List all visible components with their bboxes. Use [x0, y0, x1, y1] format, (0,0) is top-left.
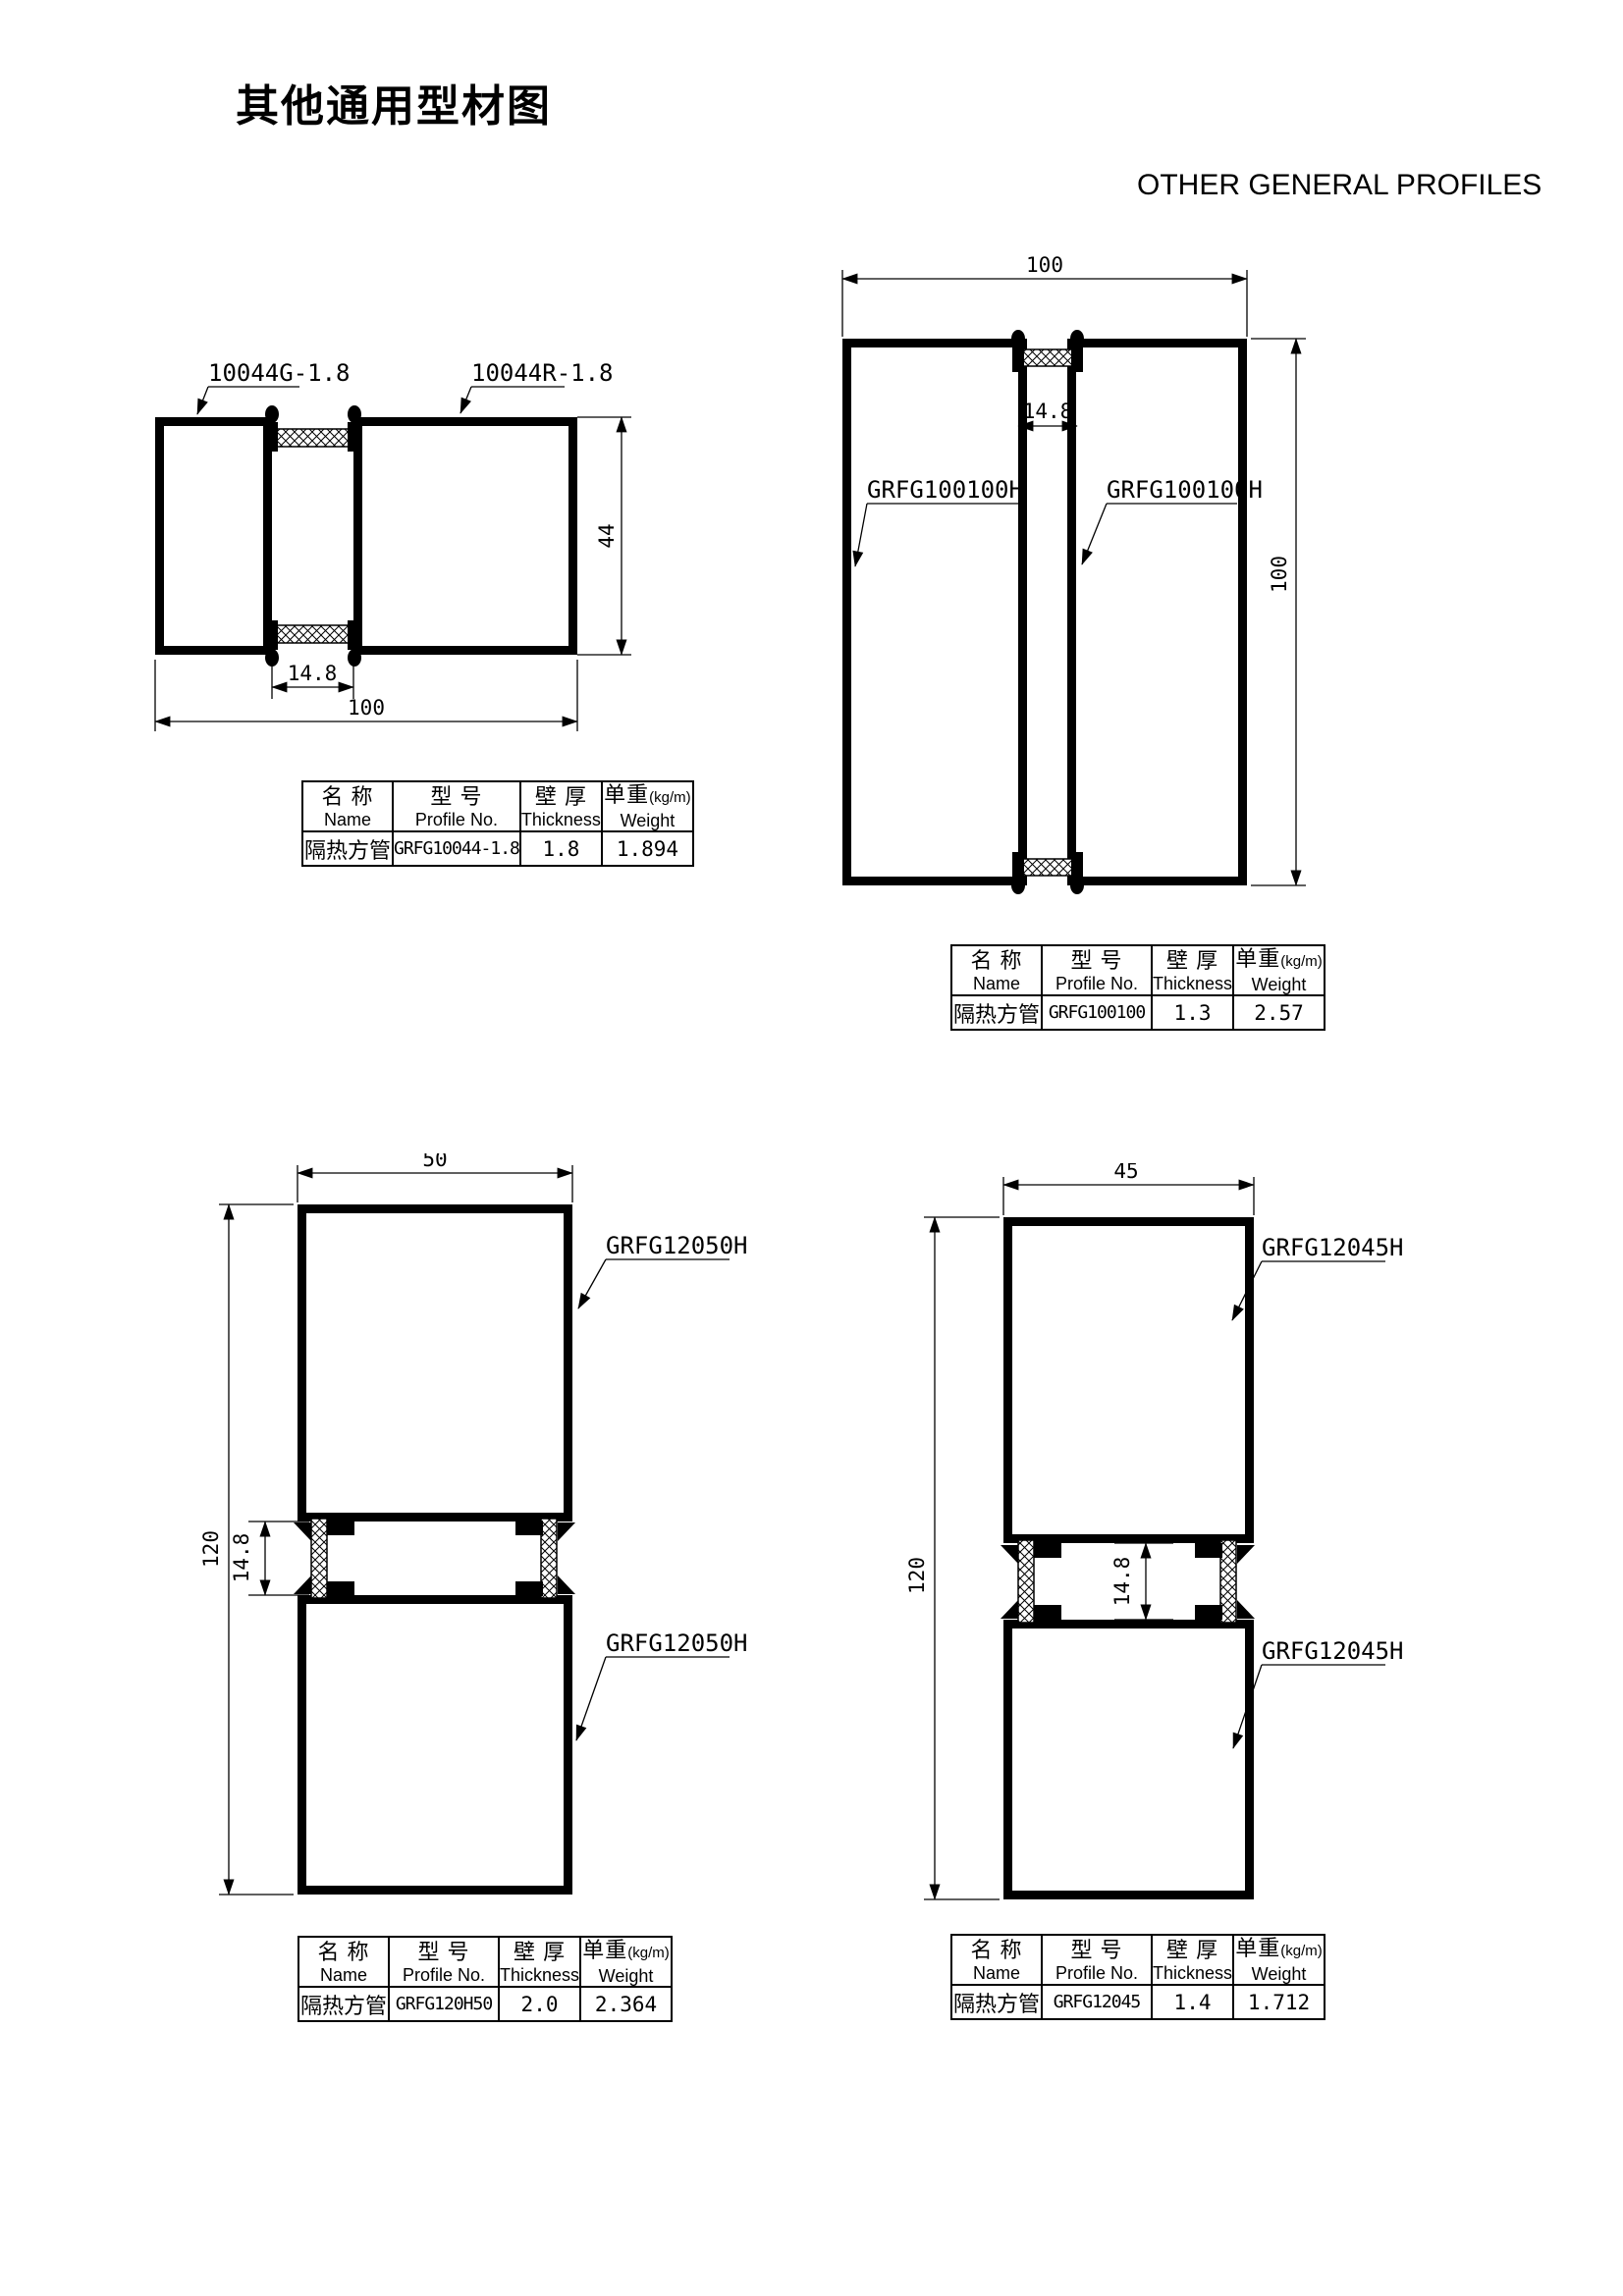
callout-top-label: GRFG12045H — [1262, 1234, 1404, 1261]
cell-profile-no: GRFG120H50 — [389, 1987, 499, 2021]
header-thickness-en: Thickness — [1153, 974, 1232, 993]
header-weight: 单重(kg/m)Weight — [580, 1937, 672, 1987]
thermal-break-straps — [294, 1519, 575, 1598]
table-data-row: 隔热方管 GRFG100100 1.3 2.57 — [951, 995, 1325, 1030]
header-name-cn: 名 称 — [299, 1940, 388, 1965]
header-weight: 单重(kg/m)Weight — [1233, 945, 1325, 995]
header-weight-en: Weight — [603, 811, 692, 830]
header-profile: 型 号Profile No. — [1042, 945, 1152, 995]
header-thickness-cn: 壁 厚 — [1153, 948, 1232, 974]
header-weight: 单重(kg/m)Weight — [602, 781, 693, 831]
callout-right-label: 10044R-1.8 — [471, 359, 614, 387]
callout-left-label: 10044G-1.8 — [208, 359, 351, 387]
header-weight-en: Weight — [581, 1966, 671, 1986]
header-profile: 型 号Profile No. — [393, 781, 520, 831]
header-profile-en: Profile No. — [390, 1965, 498, 1985]
dimension-width — [842, 270, 1247, 337]
table-header-row: 名 称Name 型 号Profile No. 壁 厚Thickness 单重(k… — [951, 1935, 1325, 1985]
cell-weight: 1.894 — [602, 831, 693, 866]
cell-thickness: 1.8 — [520, 831, 602, 866]
callout-top: GRFG12045H — [1232, 1234, 1404, 1320]
dim-width-label: 50 — [422, 1153, 447, 1171]
cell-thickness: 1.3 — [1152, 995, 1233, 1030]
figure-tube-100x100: 100 14.8 100 GRFG100100H GRFG100100H — [825, 250, 1321, 898]
table-data-row: 隔热方管 GRFG10044-1.8 1.8 1.894 — [302, 831, 693, 866]
header-weight-unit: (kg/m) — [1280, 1943, 1323, 1959]
dim-height-label: 120 — [905, 1557, 929, 1594]
header-weight-cn: 单重(kg/m) — [581, 1938, 671, 1966]
thermal-break-straps — [265, 405, 361, 667]
header-name-en: Name — [952, 974, 1041, 993]
header-weight: 单重(kg/m)Weight — [1233, 1935, 1325, 1985]
header-weight-cn: 单重(kg/m) — [603, 782, 692, 811]
header-thickness-cn: 壁 厚 — [500, 1940, 579, 1965]
header-weight-en: Weight — [1234, 975, 1324, 994]
dim-height-label: 44 — [595, 523, 619, 548]
header-thickness-en: Thickness — [1153, 1963, 1232, 1983]
header-thickness-en: Thickness — [500, 1965, 579, 1985]
page-subtitle: OTHER GENERAL PROFILES — [1137, 169, 1522, 202]
header-name: 名 称Name — [951, 1935, 1042, 1985]
dim-break-height-label: 14.8 — [1110, 1557, 1134, 1607]
cell-thickness: 2.0 — [499, 1987, 580, 2021]
cell-weight: 2.364 — [580, 1987, 672, 2021]
drawing-sheet: 其他通用型材图 OTHER GENERAL PROFILES — [0, 0, 1623, 2296]
header-profile: 型 号Profile No. — [1042, 1935, 1152, 1985]
profile-outline — [847, 344, 1243, 881]
cell-profile-no: GRFG10044-1.8 — [393, 831, 520, 866]
cell-weight: 2.57 — [1233, 995, 1325, 1030]
callout-bottom-label: GRFG12045H — [1262, 1637, 1404, 1665]
callout-bottom: GRFG12045H — [1233, 1637, 1404, 1748]
header-profile-en: Profile No. — [1043, 1963, 1151, 1983]
cell-name: 隔热方管 — [951, 995, 1042, 1030]
cell-name: 隔热方管 — [951, 1985, 1042, 2019]
table-header-row: 名 称Name 型 号Profile No. 壁 厚Thickness 单重(k… — [298, 1937, 672, 1987]
header-thickness: 壁 厚Thickness — [1152, 945, 1233, 995]
dim-break-width-label: 14.8 — [1023, 400, 1073, 423]
header-weight-cn: 单重(kg/m) — [1234, 946, 1324, 975]
dim-break-width-label: 14.8 — [288, 662, 338, 685]
header-name-en: Name — [299, 1965, 388, 1985]
header-thickness: 壁 厚Thickness — [1152, 1935, 1233, 1985]
header-name-cn: 名 称 — [952, 948, 1041, 974]
callout-top-label: GRFG12050H — [606, 1232, 746, 1259]
cell-name: 隔热方管 — [302, 831, 393, 866]
header-name: 名 称Name — [302, 781, 393, 831]
header-thickness-en: Thickness — [521, 810, 601, 829]
header-thickness-cn: 壁 厚 — [521, 784, 601, 810]
table-header-row: 名 称Name 型 号Profile No. 壁 厚Thickness 单重(k… — [951, 945, 1325, 995]
spec-table-12050: 名 称Name 型 号Profile No. 壁 厚Thickness 单重(k… — [298, 1936, 673, 2022]
spec-table-100100: 名 称Name 型 号Profile No. 壁 厚Thickness 单重(k… — [950, 944, 1325, 1031]
header-name: 名 称Name — [298, 1937, 389, 1987]
cell-thickness: 1.4 — [1152, 1985, 1233, 2019]
dim-height-label: 100 — [1268, 556, 1291, 593]
table-data-row: 隔热方管 GRFG12045 1.4 1.712 — [951, 1985, 1325, 2019]
page-title: 其他通用型材图 — [236, 71, 552, 133]
callout-right: GRFG100100H — [1082, 476, 1263, 564]
callout-left-label: GRFG100100H — [867, 476, 1023, 504]
header-weight-cn: 单重(kg/m) — [1234, 1936, 1324, 1964]
figure-tube-100x44: 44 14.8 100 10044G-1.8 10044R-1.8 — [118, 344, 668, 746]
strap-hooks — [294, 1521, 575, 1596]
header-weight-en: Weight — [1234, 1964, 1324, 1984]
dimension-break-height — [248, 1522, 309, 1595]
table-data-row: 隔热方管 GRFG120H50 2.0 2.364 — [298, 1987, 672, 2021]
header-profile-en: Profile No. — [1043, 974, 1151, 993]
profile-outline — [160, 422, 573, 651]
callout-left: GRFG100100H — [855, 476, 1023, 566]
dim-width-label: 45 — [1113, 1163, 1138, 1183]
spec-table-10044: 名 称Name 型 号Profile No. 壁 厚Thickness 单重(k… — [301, 780, 694, 867]
header-thickness: 壁 厚Thickness — [520, 781, 602, 831]
header-profile-cn: 型 号 — [1043, 1938, 1151, 1963]
callout-right-label: GRFG100100H — [1107, 476, 1263, 504]
dimension-height — [924, 1217, 1000, 1899]
header-profile: 型 号Profile No. — [389, 1937, 499, 1987]
header-name-en: Name — [303, 810, 392, 829]
cell-profile-no: GRFG12045 — [1042, 1985, 1152, 2019]
header-name-cn: 名 称 — [952, 1938, 1041, 1963]
header-profile-cn: 型 号 — [1043, 948, 1151, 974]
header-profile-cn: 型 号 — [390, 1940, 498, 1965]
callout-bottom-label: GRFG12050H — [606, 1629, 746, 1657]
table-header-row: 名 称Name 型 号Profile No. 壁 厚Thickness 单重(k… — [302, 781, 693, 831]
header-weight-unit: (kg/m) — [627, 1945, 670, 1961]
dim-break-height-label: 14.8 — [230, 1533, 253, 1583]
header-thickness-cn: 壁 厚 — [1153, 1938, 1232, 1963]
callout-top: GRFG12050H — [578, 1232, 746, 1308]
spec-table-12045: 名 称Name 型 号Profile No. 壁 厚Thickness 单重(k… — [950, 1934, 1325, 2020]
dimension-height — [1251, 339, 1306, 885]
cell-name: 隔热方管 — [298, 1987, 389, 2021]
cell-profile-no: GRFG100100 — [1042, 995, 1152, 1030]
header-name-en: Name — [952, 1963, 1041, 1983]
header-name: 名 称Name — [951, 945, 1042, 995]
callout-right: 10044R-1.8 — [460, 359, 614, 413]
dim-height-label: 120 — [199, 1530, 223, 1568]
header-weight-unit: (kg/m) — [649, 789, 691, 806]
header-name-cn: 名 称 — [303, 784, 392, 810]
cell-weight: 1.712 — [1233, 1985, 1325, 2019]
profile-outline — [302, 1209, 568, 1891]
figure-tube-120x50: 50 120 14.8 GRFG12050H GRFG12050H — [191, 1153, 746, 1919]
header-profile-en: Profile No. — [394, 810, 519, 829]
header-weight-unit: (kg/m) — [1280, 953, 1323, 970]
callout-bottom: GRFG12050H — [576, 1629, 746, 1740]
header-thickness: 壁 厚Thickness — [499, 1937, 580, 1987]
dim-width-label: 100 — [348, 696, 385, 720]
figure-tube-120x45: 45 120 14.8 GRFG12045H GRFG12045H — [879, 1163, 1448, 1919]
dim-width-label: 100 — [1026, 253, 1063, 277]
header-profile-cn: 型 号 — [394, 784, 519, 810]
